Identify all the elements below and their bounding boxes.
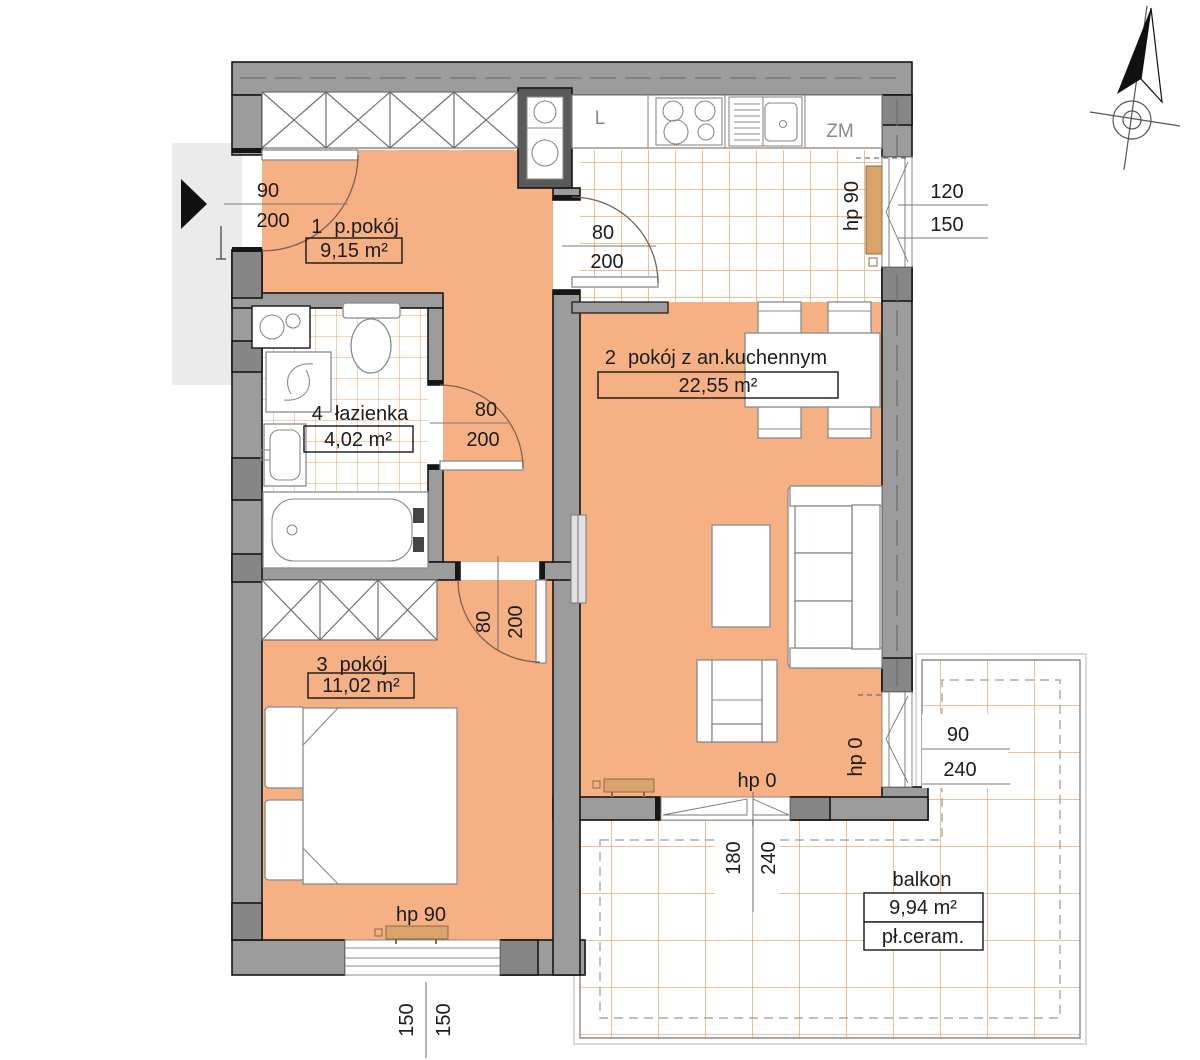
svg-text:200: 200: [505, 605, 527, 638]
svg-text:90: 90: [947, 724, 969, 746]
wall-bathroom-right-lower: [428, 465, 443, 562]
dishwasher-label: ZM: [826, 121, 853, 142]
room1-label: 1p.pokój 9,15 m²: [306, 216, 402, 263]
chair: [758, 405, 801, 438]
kitchen-counter: L ZM: [572, 95, 882, 148]
svg-text:80: 80: [473, 611, 495, 633]
dining-table: [745, 333, 880, 407]
counter-peninsula: [572, 302, 668, 313]
svg-text:9,15 m²: 9,15 m²: [320, 240, 388, 262]
wardrobe-room3: [262, 580, 437, 640]
wall-hall-living: [553, 290, 580, 975]
svg-text:hp 90: hp 90: [396, 904, 446, 926]
floor-plan: L ZM: [0, 0, 1200, 1060]
svg-text:9,94 m²: 9,94 m²: [889, 897, 957, 919]
utility-shaft: [518, 88, 572, 188]
wall-bottom-left: [232, 940, 345, 975]
pier: [232, 554, 262, 582]
utility-niche: [252, 306, 310, 348]
svg-text:200: 200: [590, 251, 623, 273]
sofa: [788, 486, 882, 668]
bathtub-icon: [263, 492, 428, 568]
pier: [232, 903, 262, 940]
chair: [758, 302, 801, 335]
svg-text:4,02 m²: 4,02 m²: [324, 429, 392, 451]
svg-text:90: 90: [257, 180, 279, 202]
mattress: [303, 708, 457, 884]
wardrobe-room1: [262, 92, 518, 148]
pillow: [265, 800, 305, 880]
bathroom-sink-icon: [261, 424, 306, 486]
pier: [232, 250, 262, 298]
fridge-label: L: [595, 108, 606, 129]
svg-text:240: 240: [758, 841, 780, 874]
svg-text:150: 150: [396, 1003, 418, 1036]
chair: [828, 405, 871, 438]
svg-text:hp 0: hp 0: [845, 738, 867, 777]
room3-window: [345, 940, 500, 975]
svg-text:11,02 m²: 11,02 m²: [322, 675, 400, 697]
coffee-table: [712, 525, 770, 627]
svg-text:hp 90: hp 90: [841, 181, 863, 231]
svg-text:150: 150: [433, 1003, 455, 1036]
svg-text:200: 200: [466, 429, 499, 451]
radiator-kitchen-window: [866, 166, 882, 266]
svg-text:120: 120: [930, 181, 963, 203]
pier: [232, 458, 262, 500]
wall-left-upper: [232, 95, 262, 155]
svg-text:180: 180: [723, 841, 745, 874]
svg-text:pł.ceram.: pł.ceram.: [882, 926, 964, 948]
pillow: [265, 707, 305, 788]
chair: [828, 302, 871, 335]
svg-text:240: 240: [943, 759, 976, 781]
svg-text:150: 150: [930, 214, 963, 236]
pier: [500, 940, 538, 975]
svg-text:2pokój z an.kuchennym: 2pokój z an.kuchennym: [605, 347, 827, 369]
pier: [790, 797, 830, 820]
svg-text:hp 0: hp 0: [738, 770, 777, 792]
hall-radiator: [571, 515, 586, 603]
floor-plan-page: L ZM: [0, 0, 1200, 1060]
svg-text:22,55 m²: 22,55 m²: [679, 375, 758, 397]
svg-text:200: 200: [256, 210, 289, 232]
wall-bathroom-right-upper: [428, 308, 443, 385]
armchair: [697, 660, 777, 742]
balcony-door: [661, 797, 790, 820]
svg-text:balkon: balkon: [893, 869, 952, 891]
north-arrow-icon: [1090, 6, 1180, 170]
svg-text:80: 80: [475, 399, 497, 421]
svg-text:80: 80: [592, 222, 614, 244]
